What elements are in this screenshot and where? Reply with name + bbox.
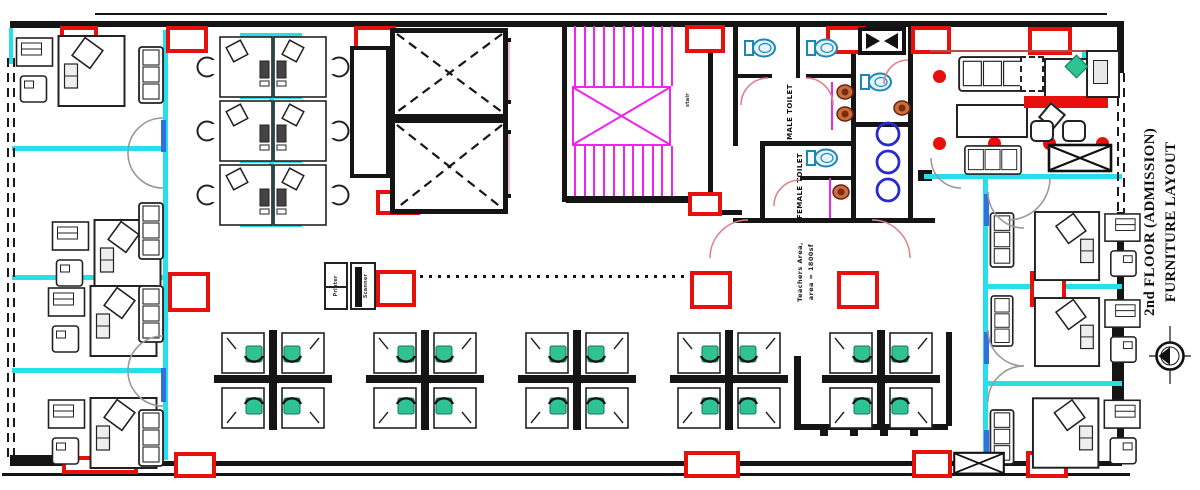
workstation-row (198, 100, 348, 162)
stair-tread (584, 26, 586, 86)
sofa (138, 409, 164, 467)
wall-segment (733, 24, 738, 146)
sink-fixture (893, 100, 911, 116)
office-desk (1030, 212, 1142, 282)
sofa (989, 212, 1015, 268)
wall-segment (562, 24, 567, 202)
printer-label: Printer (331, 268, 341, 304)
corner-desk (1086, 50, 1120, 98)
workstation-pod (214, 330, 332, 430)
toilet-fixture (806, 146, 840, 170)
drawing-title: 2nd FLOOR (ADMISSION) FURNITURE LAYOUT (1140, 98, 1192, 346)
area-annotation-line2: area = 1800sf (807, 244, 815, 300)
area-annotation: Teachers Area, area = 1800sf (792, 217, 820, 327)
wall-segment (850, 430, 858, 436)
stair-tread (593, 146, 595, 196)
counter-line (831, 82, 833, 130)
stair-landing-box (572, 86, 671, 146)
stair-tread (613, 26, 615, 86)
stair-tread (613, 146, 615, 196)
stair-tread (574, 26, 576, 86)
wall-segment (806, 74, 854, 78)
elevator-car-2 (390, 118, 508, 214)
glass-partition (983, 381, 1122, 386)
light-fixture-dot (933, 137, 946, 150)
stair-tread (584, 146, 586, 196)
drawing-title-line1: 2nd FLOOR (ADMISSION) (1140, 98, 1161, 346)
toilet-fixture (806, 36, 840, 60)
scanner-label: Scanner (361, 268, 371, 304)
sofa (989, 295, 1015, 347)
wall-segment (733, 218, 935, 223)
workstation-pod (518, 330, 636, 430)
stair-tread (652, 146, 654, 196)
drawing-title-line2: FURNITURE LAYOUT (1161, 98, 1182, 346)
stair-tread (671, 146, 673, 196)
sink-fixture (836, 84, 854, 100)
glass-partition (12, 146, 164, 151)
stair-shaft (350, 46, 390, 178)
wall-segment (880, 430, 888, 436)
sofa (964, 144, 1022, 176)
stair-tread (574, 146, 576, 196)
wall-segment (794, 356, 801, 430)
workstation-row (198, 164, 348, 226)
wall-segment (910, 430, 918, 436)
wall-segment (95, 13, 1107, 15)
column-marker (684, 451, 740, 478)
stair-tread (661, 26, 663, 86)
wall-segment (566, 196, 704, 203)
x-crate (948, 452, 1010, 476)
sink-fixture (836, 106, 854, 122)
stair-tread (632, 26, 634, 86)
column-marker (912, 450, 952, 478)
office-desk (1030, 298, 1142, 368)
floor-plan-canvas: Printer Scanner MALE TOILET FEMALE TOILE… (0, 0, 1200, 490)
duct-shaft (858, 27, 906, 55)
sofa (138, 46, 164, 104)
glass-partition (924, 174, 1122, 179)
guest-chair (1062, 120, 1086, 142)
stair-tread (642, 146, 644, 196)
stair-tread (593, 26, 595, 86)
office-desk (14, 36, 130, 108)
workstation-row (198, 36, 348, 98)
curtain-wall-dashed (13, 58, 15, 462)
stair-tread (642, 26, 644, 86)
counter-line (829, 178, 831, 218)
stair-tread (603, 146, 605, 196)
wall-segment (10, 21, 62, 28)
office-desk (1028, 398, 1142, 470)
column-marker (376, 270, 416, 307)
corridor-dotted-line (420, 275, 688, 278)
sofa (138, 202, 164, 260)
light-fixture-dot (933, 70, 946, 83)
column-marker (685, 25, 725, 53)
workstation-pod (670, 330, 788, 430)
stair-tread (623, 146, 625, 196)
stair-label: stair (682, 75, 694, 125)
x-crate (1048, 144, 1112, 174)
stair-tread (652, 26, 654, 86)
area-annotation-line1: Teachers Area, (796, 242, 804, 302)
wall-segment (851, 122, 913, 127)
door-leaf (161, 368, 166, 402)
stair-tread (632, 146, 634, 196)
column-marker (837, 271, 879, 309)
workstation-pod (366, 330, 484, 430)
door-leaf (161, 120, 166, 152)
toilet-fixture (744, 36, 778, 60)
coffee-table (956, 104, 1028, 138)
toilet-fixture (860, 70, 894, 94)
curtain-wall-dashed (7, 58, 9, 462)
curtain-wall-dashed (1123, 73, 1125, 213)
column-marker (168, 272, 210, 312)
sink-fixture (832, 184, 850, 200)
guest-chair (1030, 120, 1054, 142)
wall-segment (800, 176, 855, 180)
column-marker (688, 192, 722, 216)
wall-segment (946, 332, 952, 426)
stair-tread (661, 146, 663, 196)
wall-segment (760, 146, 765, 222)
wall-segment (820, 430, 828, 436)
elevator-car-1 (390, 28, 508, 119)
sofa (138, 285, 164, 343)
glass-partition (12, 368, 164, 373)
stair-tread (671, 26, 673, 86)
wash-basin-circles (877, 123, 899, 201)
sofa (958, 56, 1028, 92)
column-marker (690, 271, 732, 309)
column-marker (174, 452, 216, 478)
stair-tread (603, 26, 605, 86)
wall-segment (738, 74, 772, 78)
workstation-pod (822, 330, 940, 430)
reception-cabinet (1020, 56, 1044, 92)
stair-tread (623, 26, 625, 86)
